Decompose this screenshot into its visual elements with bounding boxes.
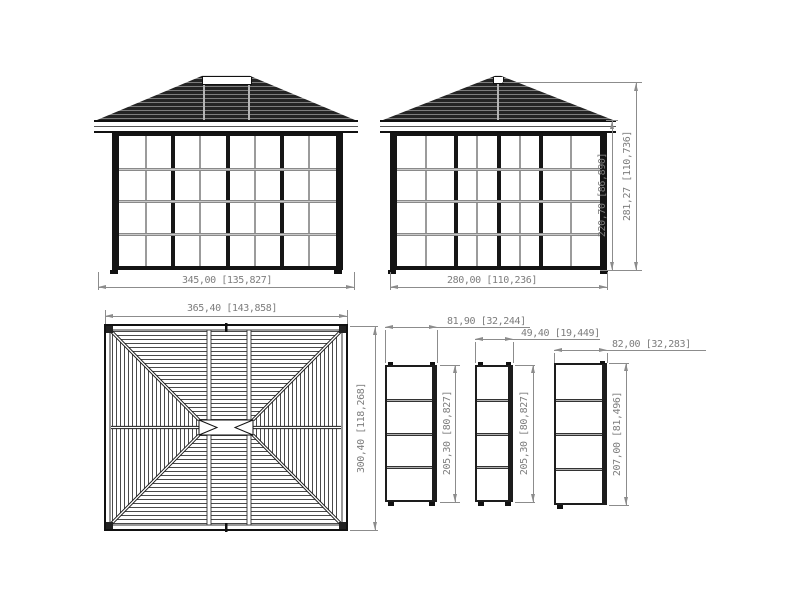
dimension-line — [375, 327, 376, 530]
extension-line — [607, 353, 608, 363]
dimension-arrow — [634, 83, 638, 91]
dimension-arrow — [634, 262, 638, 270]
panel-rail — [387, 466, 432, 469]
dimension-arrow — [339, 314, 347, 318]
dimension-arrow — [453, 365, 457, 373]
roof-rib — [203, 81, 205, 120]
panel-foot — [478, 502, 484, 506]
side-width-dimension-label: 280,00 [110,236] — [447, 276, 537, 286]
extension-line — [354, 272, 355, 290]
panel-fixed-width-dimension-label: 82,00 [32,283] — [612, 340, 691, 350]
dimension-arrow — [610, 121, 614, 129]
panel-narrow-height-dimension-label: 205,30 [80,827] — [520, 358, 530, 508]
panel-foot — [429, 502, 435, 506]
window-mullion — [119, 233, 336, 236]
panel-rail — [477, 433, 508, 436]
panel-rail — [387, 399, 432, 402]
dimension-line — [385, 327, 530, 328]
window-mullion — [397, 233, 600, 236]
extension-line — [600, 270, 642, 271]
panel-roller-tab — [430, 362, 435, 365]
dimension-arrow — [98, 285, 106, 289]
dimension-arrow — [385, 325, 393, 329]
dimension-arrow — [373, 522, 377, 530]
panel-roller-tab — [388, 362, 393, 365]
dimension-line — [475, 339, 600, 340]
panel-narrow — [475, 365, 513, 502]
panel-foot — [505, 502, 511, 506]
dimension-arrow — [599, 348, 607, 352]
front-elevation-view — [97, 75, 355, 305]
panel-foot — [388, 502, 394, 506]
dimension-arrow — [505, 337, 513, 341]
roof-skylight — [202, 76, 252, 85]
roof-rib — [248, 81, 250, 120]
dimension-arrow — [610, 262, 614, 270]
post-foot — [110, 270, 118, 274]
extension-line — [554, 353, 555, 363]
dimension-line — [626, 363, 627, 505]
dimension-arrow — [624, 497, 628, 505]
side-wall-height-dimension-label: 220,70 [86,890] — [598, 120, 608, 270]
extension-line — [475, 342, 476, 363]
roof-plan-depth-dimension-label: 300,40 [118,268] — [357, 353, 367, 503]
extension-line — [607, 272, 608, 290]
dimension-arrow — [346, 285, 354, 289]
front-wall — [112, 133, 343, 270]
dimension-arrow — [599, 285, 607, 289]
dimension-arrow — [390, 285, 398, 289]
ridge-center-plate — [199, 420, 253, 435]
technical-drawing-sheet: 345,00 [135,827] 280,00 [110,236] — [0, 0, 800, 600]
panel-roller-tab — [478, 362, 483, 365]
panel-rail — [477, 399, 508, 402]
roof-plan-view — [104, 323, 349, 532]
roof-plan-width-dimension-label: 365,40 [143,858] — [187, 304, 277, 314]
side-eave-cornice — [380, 120, 616, 133]
post-foot — [334, 270, 342, 274]
dimension-line — [390, 287, 607, 288]
dimension-line — [533, 365, 534, 502]
front-eave-cornice — [94, 120, 358, 133]
dimension-arrow — [624, 363, 628, 371]
dimension-arrow — [373, 327, 377, 335]
panel-roller-tab — [600, 361, 605, 364]
panel-wide-width-dimension-label: 81,90 [32,244] — [447, 317, 526, 327]
panel-wide-height-dimension-label: 205,30 [80,827] — [443, 358, 453, 508]
panel-fixed-height-dimension-label: 207,00 [81,496] — [613, 359, 623, 509]
dimension-line — [554, 350, 706, 351]
panel-rail — [556, 399, 602, 402]
dimension-line — [612, 121, 613, 270]
side-wall — [390, 133, 607, 270]
front-width-dimension-label: 345,00 [135,827] — [182, 276, 272, 286]
window-mullion — [119, 168, 336, 171]
panel-foot — [557, 505, 563, 509]
window-mullion — [119, 200, 336, 203]
roof-rib — [497, 80, 499, 120]
extension-line — [437, 330, 438, 363]
front-roof — [97, 75, 355, 120]
panel-rail — [556, 468, 602, 471]
dimension-line — [105, 316, 347, 317]
dimension-arrow — [475, 337, 483, 341]
panel-roller-tab — [506, 362, 511, 365]
extension-line — [513, 342, 514, 363]
panel-narrow-width-dimension-label: 49,40 [19,449] — [521, 329, 600, 339]
dimension-line — [636, 83, 637, 270]
window-mullion — [397, 200, 600, 203]
extension-line — [502, 82, 642, 83]
panel-fixed — [554, 363, 607, 505]
dimension-arrow — [554, 348, 562, 352]
extension-line — [385, 330, 386, 363]
dimension-arrow — [453, 494, 457, 502]
dimension-arrow — [531, 365, 535, 373]
dimension-line — [98, 287, 354, 288]
side-elevation-view — [383, 75, 613, 305]
dimension-line — [455, 365, 456, 502]
panel-rail — [387, 433, 432, 436]
dimension-arrow — [105, 314, 113, 318]
panel-rail — [477, 466, 508, 469]
extension-line — [350, 530, 378, 531]
dimension-arrow — [531, 494, 535, 502]
panel-wide — [385, 365, 437, 502]
window-mullion — [397, 168, 600, 171]
side-total-height-dimension-label: 281,27 [110,736] — [623, 101, 633, 251]
dimension-arrow — [429, 325, 437, 329]
panel-rail — [556, 433, 602, 436]
